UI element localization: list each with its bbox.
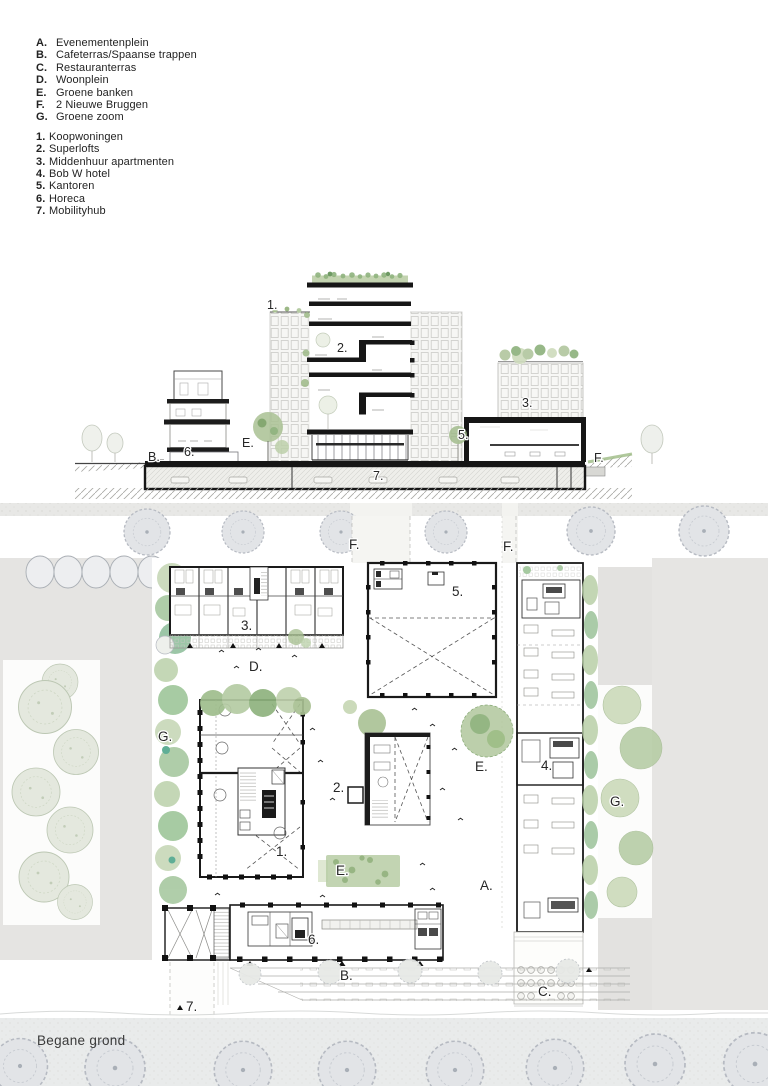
legend-key: 2.: [36, 143, 49, 155]
legend-item: 3.Middenhuur apartmenten: [36, 156, 197, 168]
plan-label-6: 6.: [308, 932, 319, 947]
section-label-7: 7.: [373, 469, 383, 483]
legend-label: Woonplein: [56, 74, 109, 86]
legend-key: 4.: [36, 168, 49, 180]
plan-label-g-right: G.: [610, 794, 624, 809]
legend-item: D.Woonplein: [36, 74, 197, 86]
section-label-b: B.: [148, 450, 160, 464]
legend-label: Evenementenplein: [56, 37, 149, 49]
legend-item: B.Cafeterras/Spaanse trappen: [36, 49, 197, 61]
plan-label-4: 4.: [541, 758, 552, 773]
plan-label-f-right: F.: [503, 539, 514, 554]
plan-label-5: 5.: [452, 584, 463, 599]
legend-label: Restauranterras: [56, 62, 136, 74]
legend-key: 6.: [36, 193, 49, 205]
legend-label: Koopwoningen: [49, 131, 123, 143]
street-band-top: [0, 503, 768, 516]
legend-item: 4.Bob W hotel: [36, 168, 197, 180]
building-2-tower-section: [301, 272, 415, 462]
legend-key: 1.: [36, 131, 49, 143]
plan-label-1: 1.: [276, 844, 287, 859]
plan-label-3: 3.: [241, 618, 252, 633]
plan-label-e-bench: E.: [336, 863, 349, 878]
legend-item: E.Groene banken: [36, 87, 197, 99]
legend-label: Groene banken: [56, 87, 133, 99]
building-6-plan: [162, 903, 443, 967]
plan-caption: Begane grond: [37, 1033, 125, 1048]
spaanse-trappen: [230, 959, 630, 1001]
legend-label: Superlofts: [49, 143, 100, 155]
plan-label-c: C.: [538, 984, 552, 999]
plan-label-f-left: F.: [349, 537, 360, 552]
legend-label: Cafeterras/Spaanse trappen: [56, 49, 197, 61]
street-band-bottom: [0, 1011, 768, 1086]
legend: A.Evenementenplein B.Cafeterras/Spaanse …: [36, 37, 197, 218]
legend-key: 5.: [36, 180, 49, 192]
legend-item: 5.Kantoren: [36, 180, 197, 192]
legend-key: 3.: [36, 156, 49, 168]
legend-item: 6.Horeca: [36, 193, 197, 205]
garage-7-section: [75, 461, 632, 499]
section-trees-left: [82, 425, 123, 462]
building-4-plan: [514, 563, 598, 1006]
legend-label: Middenhuur apartmenten: [49, 156, 174, 168]
plan-label-2: 2.: [333, 780, 344, 795]
groene-banken: [318, 855, 400, 887]
section-label-5: 5.: [458, 428, 468, 442]
section-drawing: 1. 2. 3. 5. 6. 7. B. E. F.: [60, 255, 710, 500]
building-1-plan: [198, 684, 312, 880]
ground-floor-plan: F. F. 3. 5. D. G. G. 2. 4. E. E. A. 1. 6…: [0, 500, 768, 1086]
left-blocks: [0, 556, 166, 960]
building-2-plan: [348, 733, 431, 825]
legend-label: Groene zoom: [56, 111, 124, 123]
building-5-section: [449, 417, 586, 462]
park-left: [3, 660, 100, 925]
legend-key: F.: [36, 99, 56, 111]
legend-item: F.2 Nieuwe Bruggen: [36, 99, 197, 111]
legend-item: C.Restauranterras: [36, 62, 197, 74]
plan-label-e-tree: E.: [475, 759, 488, 774]
section-label-3: 3.: [522, 396, 532, 410]
plan-label-7: 7.: [186, 999, 197, 1014]
section-label-f: F.: [594, 451, 604, 465]
section-label-6: 6.: [184, 445, 194, 459]
legend-label: Mobilityhub: [49, 205, 106, 217]
legend-label: 2 Nieuwe Bruggen: [56, 99, 148, 111]
plan-label-b: B.: [340, 968, 353, 983]
legend-label: Horeca: [49, 193, 85, 205]
legend-key: E.: [36, 87, 56, 99]
street-trees-ovals: [26, 556, 166, 588]
legend-key: A.: [36, 37, 56, 49]
legend-item: G.Groene zoom: [36, 111, 197, 123]
legend-item: A.Evenementenplein: [36, 37, 197, 49]
plan-label-g-left: G.: [158, 729, 172, 744]
right-blocks: [598, 558, 768, 1010]
legend-key: 7.: [36, 205, 49, 217]
legend-key: G.: [36, 111, 56, 123]
legend-item: 7.Mobilityhub: [36, 205, 197, 217]
building-3-section: [498, 345, 583, 421]
section-label-1: 1.: [267, 298, 277, 312]
section-label-e: E.: [242, 436, 254, 450]
legend-label: Kantoren: [49, 180, 94, 192]
architectural-sheet: A.Evenementenplein B.Cafeterras/Spaanse …: [0, 0, 768, 1086]
section-label-2: 2.: [337, 341, 347, 355]
legend-key: D.: [36, 74, 56, 86]
legend-item: 1.Koopwoningen: [36, 131, 197, 143]
plan-label-d: D.: [249, 659, 263, 674]
plan-label-a: A.: [480, 878, 493, 893]
legend-areas: A.Evenementenplein B.Cafeterras/Spaanse …: [36, 37, 197, 124]
legend-item: 2.Superlofts: [36, 143, 197, 155]
building-5-plan: [366, 561, 497, 698]
building-3-plan: [170, 567, 343, 648]
legend-buildings: 1.Koopwoningen 2.Superlofts 3.Middenhuur…: [36, 131, 197, 218]
legend-key: C.: [36, 62, 56, 74]
legend-label: Bob W hotel: [49, 168, 110, 180]
legend-key: B.: [36, 49, 56, 61]
